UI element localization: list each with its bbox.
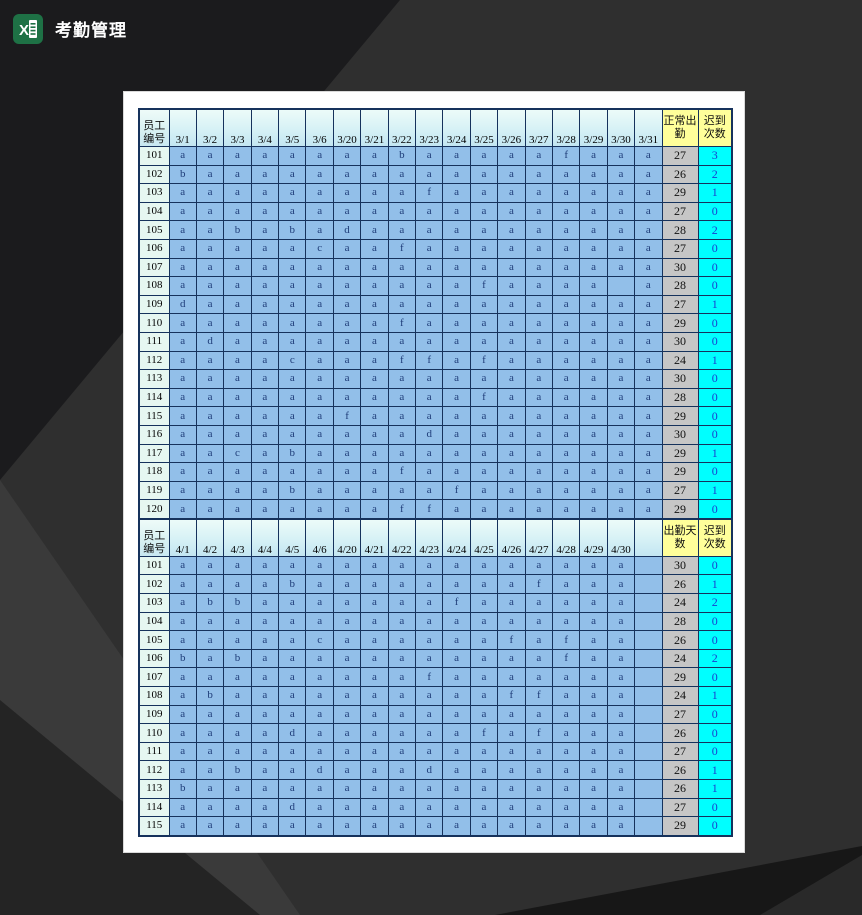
employee-id-header[interactable]: 员工编号 (139, 109, 169, 147)
attendance-mark-cell[interactable]: a (443, 165, 470, 184)
attendance-mark-cell[interactable]: a (607, 500, 634, 519)
attendance-mark-cell[interactable]: b (224, 761, 251, 780)
attendance-mark-cell[interactable]: a (169, 798, 196, 817)
attendance-mark-cell[interactable]: a (251, 798, 278, 817)
attendance-mark-cell[interactable]: a (580, 705, 607, 724)
attendance-mark-cell[interactable]: a (443, 277, 470, 296)
date-column-header[interactable]: 4/23 (416, 519, 443, 557)
attendance-total-value[interactable]: 30 (662, 258, 698, 277)
attendance-mark-cell[interactable]: a (416, 556, 443, 575)
attendance-mark-cell[interactable]: a (580, 258, 607, 277)
attendance-mark-cell[interactable]: a (525, 500, 552, 519)
attendance-mark-cell[interactable]: a (552, 724, 579, 743)
attendance-mark-cell[interactable]: a (580, 500, 607, 519)
date-column-header[interactable]: 3/4 (251, 109, 278, 147)
attendance-mark-cell[interactable]: a (635, 388, 662, 407)
attendance-mark-cell[interactable]: a (552, 780, 579, 799)
employee-id-cell[interactable]: 112 (139, 351, 169, 370)
attendance-mark-cell[interactable]: a (580, 631, 607, 650)
attendance-mark-cell[interactable]: a (251, 184, 278, 203)
attendance-mark-cell[interactable]: a (224, 165, 251, 184)
attendance-mark-cell[interactable]: a (361, 370, 388, 389)
late-count-value[interactable]: 0 (698, 500, 732, 519)
attendance-mark-cell[interactable]: a (196, 780, 223, 799)
date-column-header[interactable]: 3/29 (580, 109, 607, 147)
attendance-mark-cell[interactable] (635, 817, 662, 836)
attendance-mark-cell[interactable]: f (470, 388, 497, 407)
attendance-mark-cell[interactable]: f (525, 724, 552, 743)
attendance-mark-cell[interactable]: a (552, 202, 579, 221)
attendance-mark-cell[interactable]: a (443, 780, 470, 799)
employee-id-cell[interactable]: 114 (139, 798, 169, 817)
attendance-mark-cell[interactable]: a (333, 388, 360, 407)
attendance-mark-cell[interactable]: a (388, 165, 415, 184)
employee-id-cell[interactable]: 120 (139, 500, 169, 519)
attendance-mark-cell[interactable]: a (525, 481, 552, 500)
attendance-mark-cell[interactable]: a (470, 649, 497, 668)
attendance-mark-cell[interactable]: a (251, 649, 278, 668)
employee-id-cell[interactable]: 107 (139, 668, 169, 687)
date-column-header[interactable]: 3/30 (607, 109, 634, 147)
attendance-mark-cell[interactable]: a (470, 500, 497, 519)
attendance-mark-cell[interactable]: a (607, 705, 634, 724)
attendance-mark-cell[interactable]: a (306, 425, 333, 444)
attendance-mark-cell[interactable]: a (361, 202, 388, 221)
attendance-mark-cell[interactable]: a (498, 388, 525, 407)
attendance-mark-cell[interactable]: a (196, 481, 223, 500)
attendance-mark-cell[interactable]: f (388, 500, 415, 519)
attendance-mark-cell[interactable]: a (388, 221, 415, 240)
attendance-mark-cell[interactable]: a (635, 444, 662, 463)
attendance-mark-cell[interactable]: a (498, 798, 525, 817)
attendance-mark-cell[interactable]: a (498, 761, 525, 780)
late-count-value[interactable]: 0 (698, 370, 732, 389)
attendance-mark-cell[interactable]: a (607, 407, 634, 426)
late-count-value[interactable]: 0 (698, 258, 732, 277)
attendance-mark-cell[interactable]: a (388, 575, 415, 594)
attendance-mark-cell[interactable]: a (552, 798, 579, 817)
attendance-mark-cell[interactable]: d (279, 798, 306, 817)
attendance-mark-cell[interactable]: a (498, 575, 525, 594)
late-count-value[interactable]: 0 (698, 556, 732, 575)
attendance-mark-cell[interactable]: a (279, 780, 306, 799)
attendance-mark-cell[interactable]: a (196, 239, 223, 258)
attendance-mark-cell[interactable]: a (224, 798, 251, 817)
attendance-mark-cell[interactable]: a (169, 556, 196, 575)
attendance-mark-cell[interactable]: a (251, 594, 278, 613)
attendance-mark-cell[interactable]: a (196, 258, 223, 277)
attendance-mark-cell[interactable]: a (470, 202, 497, 221)
employee-id-cell[interactable]: 102 (139, 165, 169, 184)
attendance-mark-cell[interactable]: a (443, 351, 470, 370)
attendance-mark-cell[interactable]: a (525, 556, 552, 575)
attendance-mark-cell[interactable] (635, 687, 662, 706)
attendance-mark-cell[interactable]: a (416, 444, 443, 463)
attendance-mark-cell[interactable]: a (470, 258, 497, 277)
attendance-mark-cell[interactable]: a (470, 295, 497, 314)
attendance-mark-cell[interactable]: a (635, 221, 662, 240)
attendance-mark-cell[interactable]: a (470, 687, 497, 706)
attendance-mark-cell[interactable]: f (333, 407, 360, 426)
attendance-mark-cell[interactable]: a (361, 780, 388, 799)
attendance-mark-cell[interactable]: a (443, 817, 470, 836)
attendance-mark-cell[interactable]: a (552, 407, 579, 426)
attendance-mark-cell[interactable]: a (552, 594, 579, 613)
attendance-mark-cell[interactable]: a (498, 556, 525, 575)
employee-id-cell[interactable]: 116 (139, 425, 169, 444)
attendance-mark-cell[interactable]: a (498, 780, 525, 799)
attendance-mark-cell[interactable]: a (416, 612, 443, 631)
attendance-mark-cell[interactable]: a (361, 500, 388, 519)
date-column-header[interactable]: 3/25 (470, 109, 497, 147)
date-column-header[interactable]: 4/29 (580, 519, 607, 557)
attendance-mark-cell[interactable]: a (525, 612, 552, 631)
attendance-total-value[interactable]: 29 (662, 817, 698, 836)
attendance-mark-cell[interactable]: a (580, 594, 607, 613)
attendance-mark-cell[interactable]: a (607, 221, 634, 240)
attendance-mark-cell[interactable]: a (470, 221, 497, 240)
attendance-mark-cell[interactable]: a (306, 147, 333, 166)
attendance-mark-cell[interactable] (635, 705, 662, 724)
attendance-mark-cell[interactable]: f (552, 631, 579, 650)
attendance-mark-cell[interactable] (635, 612, 662, 631)
attendance-mark-cell[interactable]: a (443, 184, 470, 203)
employee-id-cell[interactable]: 118 (139, 463, 169, 482)
employee-id-cell[interactable]: 104 (139, 202, 169, 221)
attendance-mark-cell[interactable]: a (525, 463, 552, 482)
attendance-total-value[interactable]: 27 (662, 202, 698, 221)
attendance-mark-cell[interactable]: a (333, 184, 360, 203)
attendance-mark-cell[interactable]: f (416, 184, 443, 203)
attendance-mark-cell[interactable]: a (196, 184, 223, 203)
attendance-mark-cell[interactable]: a (224, 332, 251, 351)
attendance-mark-cell[interactable]: a (279, 165, 306, 184)
attendance-mark-cell[interactable]: f (388, 463, 415, 482)
attendance-mark-cell[interactable]: a (169, 370, 196, 389)
attendance-mark-cell[interactable]: a (552, 481, 579, 500)
attendance-mark-cell[interactable]: a (416, 481, 443, 500)
employee-id-cell[interactable]: 105 (139, 631, 169, 650)
attendance-mark-cell[interactable]: a (498, 239, 525, 258)
date-column-header[interactable]: 4/4 (251, 519, 278, 557)
attendance-mark-cell[interactable]: a (333, 481, 360, 500)
attendance-mark-cell[interactable]: a (607, 147, 634, 166)
attendance-mark-cell[interactable]: a (251, 258, 278, 277)
attendance-mark-cell[interactable]: a (196, 221, 223, 240)
attendance-mark-cell[interactable]: a (279, 705, 306, 724)
attendance-mark-cell[interactable]: a (580, 407, 607, 426)
attendance-mark-cell[interactable]: d (169, 295, 196, 314)
attendance-mark-cell[interactable]: a (498, 258, 525, 277)
attendance-mark-cell[interactable]: a (169, 277, 196, 296)
attendance-mark-cell[interactable]: a (388, 817, 415, 836)
date-column-header[interactable]: 4/24 (443, 519, 470, 557)
employee-id-cell[interactable]: 101 (139, 556, 169, 575)
attendance-mark-cell[interactable]: a (635, 425, 662, 444)
attendance-mark-cell[interactable]: a (333, 761, 360, 780)
attendance-mark-cell[interactable]: a (388, 705, 415, 724)
employee-id-cell[interactable]: 111 (139, 332, 169, 351)
attendance-mark-cell[interactable]: a (443, 705, 470, 724)
attendance-mark-cell[interactable]: a (416, 724, 443, 743)
attendance-mark-cell[interactable]: a (306, 444, 333, 463)
attendance-mark-cell[interactable]: a (196, 425, 223, 444)
attendance-mark-cell[interactable]: b (279, 481, 306, 500)
attendance-mark-cell[interactable]: a (470, 314, 497, 333)
attendance-mark-cell[interactable]: a (470, 463, 497, 482)
attendance-mark-cell[interactable] (635, 631, 662, 650)
attendance-mark-cell[interactable]: a (196, 556, 223, 575)
attendance-mark-cell[interactable]: a (443, 258, 470, 277)
attendance-mark-cell[interactable]: a (306, 594, 333, 613)
attendance-mark-cell[interactable]: a (525, 780, 552, 799)
attendance-mark-cell[interactable]: a (251, 388, 278, 407)
attendance-mark-cell[interactable]: a (306, 165, 333, 184)
late-count-value[interactable]: 0 (698, 277, 732, 296)
attendance-mark-cell[interactable]: a (306, 687, 333, 706)
attendance-mark-cell[interactable]: a (196, 147, 223, 166)
attendance-mark-cell[interactable]: a (224, 556, 251, 575)
attendance-mark-cell[interactable]: a (525, 798, 552, 817)
late-count-header[interactable]: 迟到次数 (698, 109, 732, 147)
late-count-value[interactable]: 0 (698, 705, 732, 724)
attendance-mark-cell[interactable]: a (498, 817, 525, 836)
attendance-total-value[interactable]: 27 (662, 742, 698, 761)
attendance-mark-cell[interactable]: a (361, 668, 388, 687)
attendance-mark-cell[interactable]: a (607, 724, 634, 743)
late-count-value[interactable]: 0 (698, 407, 732, 426)
attendance-mark-cell[interactable]: a (333, 798, 360, 817)
attendance-mark-cell[interactable]: b (169, 165, 196, 184)
attendance-mark-cell[interactable]: a (470, 425, 497, 444)
date-column-header[interactable]: 3/21 (361, 109, 388, 147)
attendance-mark-cell[interactable]: a (580, 277, 607, 296)
attendance-mark-cell[interactable]: a (333, 351, 360, 370)
attendance-mark-cell[interactable]: a (196, 407, 223, 426)
attendance-mark-cell[interactable]: a (361, 705, 388, 724)
attendance-mark-cell[interactable]: a (388, 761, 415, 780)
attendance-mark-cell[interactable]: a (224, 687, 251, 706)
attendance-mark-cell[interactable]: a (470, 444, 497, 463)
attendance-mark-cell[interactable]: a (333, 687, 360, 706)
attendance-mark-cell[interactable]: a (306, 258, 333, 277)
attendance-mark-cell[interactable]: a (224, 668, 251, 687)
attendance-mark-cell[interactable]: a (607, 370, 634, 389)
employee-id-cell[interactable]: 107 (139, 258, 169, 277)
attendance-mark-cell[interactable]: a (443, 407, 470, 426)
attendance-mark-cell[interactable]: a (224, 575, 251, 594)
attendance-mark-cell[interactable]: a (470, 780, 497, 799)
attendance-mark-cell[interactable]: a (580, 687, 607, 706)
employee-id-cell[interactable]: 102 (139, 575, 169, 594)
attendance-mark-cell[interactable]: a (552, 295, 579, 314)
attendance-mark-cell[interactable]: a (251, 239, 278, 258)
date-column-header[interactable]: 3/2 (196, 109, 223, 147)
attendance-mark-cell[interactable]: a (443, 221, 470, 240)
attendance-mark-cell[interactable]: a (306, 780, 333, 799)
attendance-mark-cell[interactable]: a (361, 631, 388, 650)
attendance-mark-cell[interactable]: a (279, 258, 306, 277)
attendance-mark-cell[interactable]: a (361, 724, 388, 743)
attendance-mark-cell[interactable]: a (388, 724, 415, 743)
employee-id-cell[interactable]: 115 (139, 817, 169, 836)
attendance-mark-cell[interactable]: a (361, 165, 388, 184)
late-count-value[interactable]: 1 (698, 184, 732, 203)
late-count-value[interactable]: 0 (698, 817, 732, 836)
attendance-mark-cell[interactable]: a (279, 388, 306, 407)
attendance-total-value[interactable]: 24 (662, 687, 698, 706)
attendance-mark-cell[interactable]: f (498, 687, 525, 706)
attendance-total-header[interactable]: 正常出勤 (662, 109, 698, 147)
attendance-mark-cell[interactable]: a (251, 221, 278, 240)
attendance-mark-cell[interactable]: a (470, 370, 497, 389)
attendance-mark-cell[interactable]: a (361, 575, 388, 594)
attendance-mark-cell[interactable]: a (470, 761, 497, 780)
attendance-mark-cell[interactable]: a (306, 388, 333, 407)
attendance-mark-cell[interactable]: a (498, 463, 525, 482)
attendance-mark-cell[interactable]: a (443, 425, 470, 444)
attendance-mark-cell[interactable]: a (251, 463, 278, 482)
attendance-mark-cell[interactable]: a (361, 388, 388, 407)
attendance-mark-cell[interactable]: a (251, 332, 278, 351)
attendance-mark-cell[interactable]: a (306, 556, 333, 575)
attendance-total-value[interactable]: 26 (662, 780, 698, 799)
attendance-mark-cell[interactable]: a (580, 295, 607, 314)
attendance-mark-cell[interactable]: a (470, 147, 497, 166)
attendance-total-value[interactable]: 29 (662, 463, 698, 482)
attendance-mark-cell[interactable]: a (361, 444, 388, 463)
attendance-mark-cell[interactable]: a (333, 239, 360, 258)
date-column-header[interactable]: 4/20 (333, 519, 360, 557)
attendance-mark-cell[interactable]: a (279, 761, 306, 780)
attendance-mark-cell[interactable]: a (196, 165, 223, 184)
date-column-header[interactable]: 3/24 (443, 109, 470, 147)
attendance-mark-cell[interactable]: a (498, 705, 525, 724)
attendance-mark-cell[interactable]: a (251, 724, 278, 743)
date-column-header[interactable]: 3/31 (635, 109, 662, 147)
attendance-mark-cell[interactable]: a (196, 370, 223, 389)
attendance-total-value[interactable]: 27 (662, 295, 698, 314)
attendance-mark-cell[interactable]: a (169, 388, 196, 407)
attendance-mark-cell[interactable]: b (388, 147, 415, 166)
late-count-value[interactable]: 0 (698, 631, 732, 650)
date-column-header[interactable]: 3/28 (552, 109, 579, 147)
employee-id-cell[interactable]: 106 (139, 649, 169, 668)
attendance-mark-cell[interactable]: a (580, 742, 607, 761)
attendance-mark-cell[interactable]: a (279, 631, 306, 650)
attendance-mark-cell[interactable]: a (361, 314, 388, 333)
attendance-mark-cell[interactable]: a (279, 425, 306, 444)
attendance-mark-cell[interactable]: a (607, 556, 634, 575)
attendance-mark-cell[interactable]: f (525, 575, 552, 594)
attendance-mark-cell[interactable]: b (279, 221, 306, 240)
attendance-mark-cell[interactable]: a (607, 594, 634, 613)
attendance-mark-cell[interactable]: a (552, 425, 579, 444)
attendance-mark-cell[interactable]: a (443, 500, 470, 519)
attendance-mark-cell[interactable] (635, 575, 662, 594)
date-column-header[interactable]: 3/1 (169, 109, 196, 147)
attendance-total-value[interactable]: 28 (662, 221, 698, 240)
attendance-mark-cell[interactable]: a (361, 425, 388, 444)
attendance-mark-cell[interactable]: a (196, 668, 223, 687)
attendance-mark-cell[interactable]: a (251, 500, 278, 519)
attendance-mark-cell[interactable]: a (196, 314, 223, 333)
attendance-mark-cell[interactable]: a (306, 332, 333, 351)
employee-id-cell[interactable]: 110 (139, 724, 169, 743)
attendance-mark-cell[interactable]: d (306, 761, 333, 780)
attendance-mark-cell[interactable]: a (525, 388, 552, 407)
attendance-mark-cell[interactable]: a (279, 817, 306, 836)
attendance-mark-cell[interactable]: a (416, 332, 443, 351)
attendance-mark-cell[interactable]: a (525, 370, 552, 389)
attendance-mark-cell[interactable]: a (525, 258, 552, 277)
attendance-mark-cell[interactable]: a (498, 594, 525, 613)
late-count-value[interactable]: 0 (698, 668, 732, 687)
attendance-mark-cell[interactable]: a (552, 277, 579, 296)
late-count-value[interactable]: 0 (698, 463, 732, 482)
attendance-mark-cell[interactable]: a (416, 742, 443, 761)
attendance-mark-cell[interactable]: a (224, 481, 251, 500)
attendance-mark-cell[interactable]: a (443, 742, 470, 761)
late-count-value[interactable]: 0 (698, 314, 732, 333)
attendance-mark-cell[interactable]: a (333, 724, 360, 743)
attendance-mark-cell[interactable]: a (607, 425, 634, 444)
employee-id-cell[interactable]: 114 (139, 388, 169, 407)
attendance-mark-cell[interactable]: a (525, 277, 552, 296)
late-count-value[interactable]: 0 (698, 332, 732, 351)
attendance-mark-cell[interactable]: a (470, 668, 497, 687)
employee-id-cell[interactable]: 101 (139, 147, 169, 166)
attendance-mark-cell[interactable]: a (416, 407, 443, 426)
attendance-total-value[interactable]: 27 (662, 239, 698, 258)
attendance-mark-cell[interactable]: a (580, 332, 607, 351)
attendance-mark-cell[interactable]: f (498, 631, 525, 650)
employee-id-cell[interactable]: 103 (139, 594, 169, 613)
late-count-value[interactable]: 0 (698, 425, 732, 444)
late-count-value[interactable]: 2 (698, 165, 732, 184)
attendance-mark-cell[interactable]: a (224, 780, 251, 799)
attendance-mark-cell[interactable]: a (470, 184, 497, 203)
attendance-mark-cell[interactable]: a (279, 239, 306, 258)
attendance-mark-cell[interactable]: a (525, 761, 552, 780)
date-column-header[interactable]: 3/6 (306, 109, 333, 147)
attendance-mark-cell[interactable]: a (196, 295, 223, 314)
attendance-mark-cell[interactable]: a (251, 817, 278, 836)
attendance-mark-cell[interactable]: a (443, 332, 470, 351)
attendance-mark-cell[interactable]: a (306, 370, 333, 389)
attendance-mark-cell[interactable]: a (251, 202, 278, 221)
attendance-mark-cell[interactable]: a (416, 817, 443, 836)
attendance-mark-cell[interactable]: a (251, 780, 278, 799)
attendance-mark-cell[interactable]: a (498, 370, 525, 389)
attendance-mark-cell[interactable]: a (607, 388, 634, 407)
attendance-mark-cell[interactable]: a (443, 202, 470, 221)
attendance-mark-cell[interactable]: a (607, 184, 634, 203)
attendance-mark-cell[interactable]: c (306, 631, 333, 650)
attendance-mark-cell[interactable]: a (169, 594, 196, 613)
attendance-mark-cell[interactable]: f (388, 239, 415, 258)
attendance-total-value[interactable]: 26 (662, 165, 698, 184)
attendance-mark-cell[interactable]: a (361, 594, 388, 613)
attendance-mark-cell[interactable]: f (416, 500, 443, 519)
attendance-mark-cell[interactable]: a (498, 165, 525, 184)
attendance-mark-cell[interactable]: a (552, 500, 579, 519)
attendance-mark-cell[interactable]: a (333, 147, 360, 166)
attendance-mark-cell[interactable]: a (580, 370, 607, 389)
attendance-mark-cell[interactable]: a (388, 425, 415, 444)
late-count-value[interactable]: 0 (698, 612, 732, 631)
attendance-mark-cell[interactable]: a (635, 370, 662, 389)
